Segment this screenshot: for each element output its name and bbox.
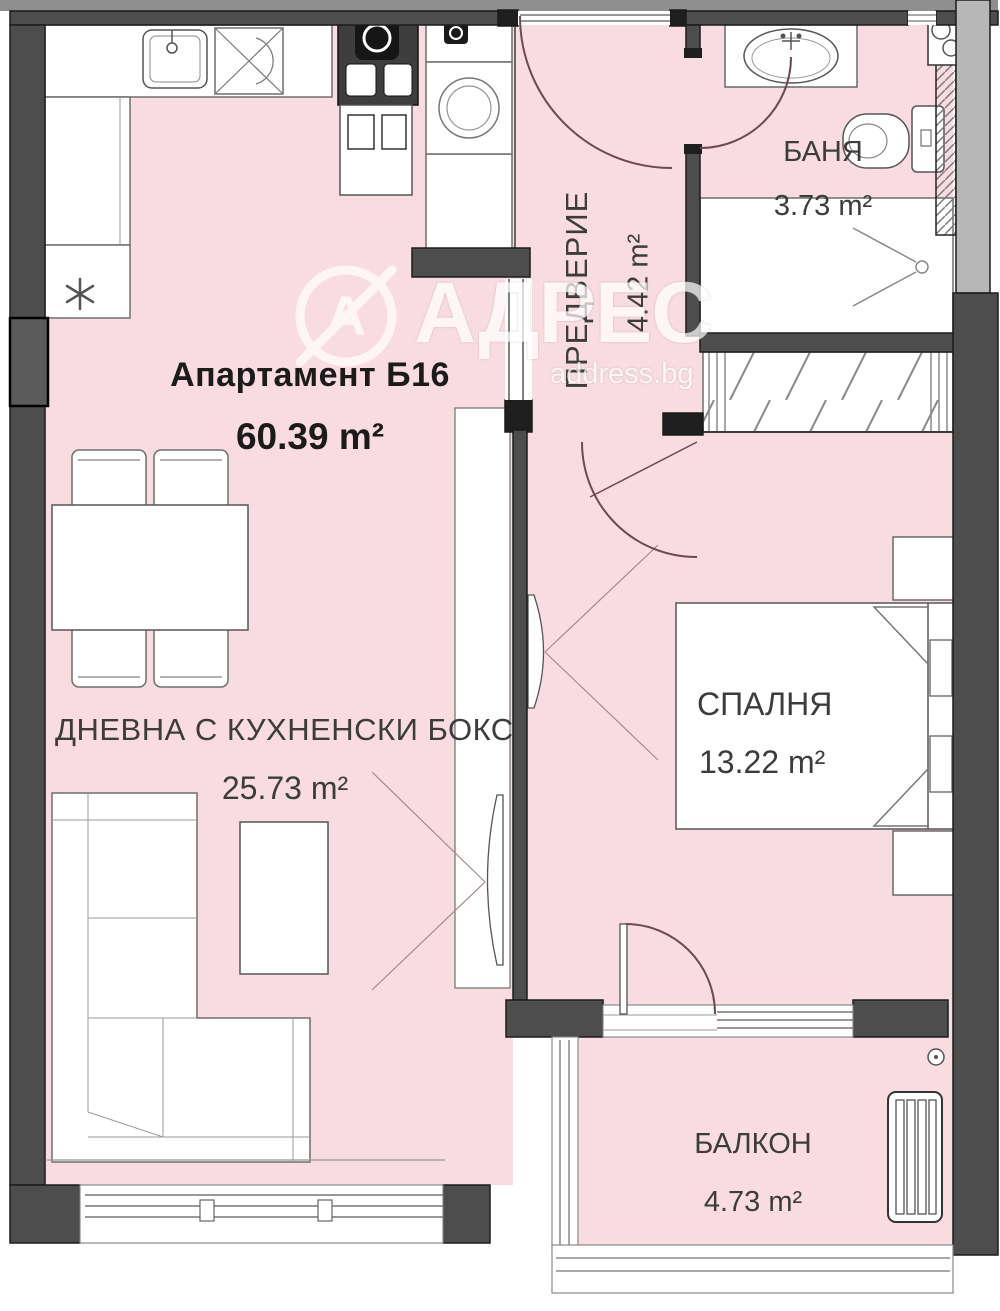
balcony-drain-icon bbox=[928, 1049, 944, 1065]
apartment-total-area: 60.39 m² bbox=[130, 416, 490, 458]
neighbor-wall bbox=[956, 0, 990, 293]
nightstand-top bbox=[893, 537, 955, 600]
room-area-living: 25.73 m² bbox=[170, 770, 400, 807]
kitchen-sink bbox=[143, 30, 207, 88]
bathroom-window bbox=[908, 11, 936, 25]
oven bbox=[340, 105, 412, 195]
radiator bbox=[888, 1092, 942, 1222]
bedroom-balcony-window bbox=[603, 1005, 853, 1037]
living-hall-doorway bbox=[505, 279, 532, 400]
room-area-bathroom: 3.73 m² bbox=[730, 190, 916, 223]
room-label-bathroom: БАНЯ bbox=[740, 136, 906, 169]
coffee-table bbox=[240, 822, 328, 974]
dining-table bbox=[52, 505, 248, 630]
room-label-living: ДНЕВНА С КУХНЕНСКИ БОКС bbox=[55, 712, 510, 748]
room-area-bedroom: 13.22 m² bbox=[699, 744, 825, 781]
wardrobe bbox=[703, 352, 953, 432]
room-area-hallway: 4.42 m² bbox=[623, 234, 656, 332]
apartment-title: Апартамент Б16 bbox=[130, 356, 490, 395]
room-area-balcony: 4.73 m² bbox=[658, 1186, 848, 1219]
nightstand-bottom bbox=[893, 831, 955, 895]
entrance-opening bbox=[518, 11, 670, 25]
kitchen-drainer bbox=[215, 28, 283, 94]
balcony-door-leaf bbox=[620, 924, 627, 1014]
fridge bbox=[45, 245, 130, 318]
floorplan-image: Апартамент Б16 60.39 m² ДНЕВНА С КУХНЕНС… bbox=[0, 0, 1000, 1311]
room-label-balcony: БАЛКОН bbox=[658, 1128, 848, 1161]
room-hall-bedroom-bath-fill bbox=[513, 25, 953, 1037]
room-label-hallway: ПРЕДВЕРИЕ bbox=[559, 191, 595, 390]
bath-sink bbox=[725, 25, 857, 87]
washing-machine bbox=[426, 62, 512, 154]
left-wall-pillar bbox=[10, 318, 48, 406]
room-label-bedroom: СПАЛНЯ bbox=[697, 686, 832, 723]
